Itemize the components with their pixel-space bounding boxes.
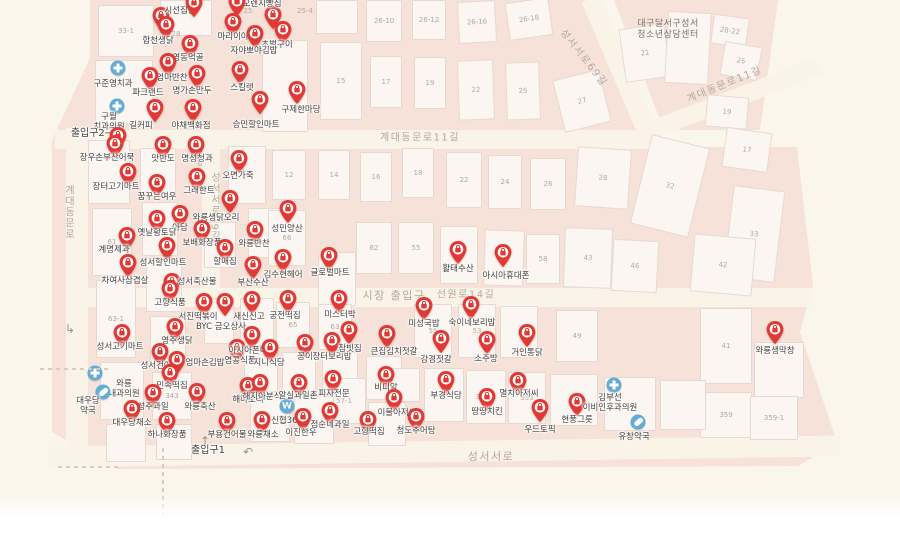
building-number: 43 — [583, 254, 592, 262]
building: 43 — [563, 227, 613, 289]
poi-label[interactable]: 미스터박 — [324, 310, 355, 320]
map-pin[interactable] — [216, 293, 234, 317]
poi-label[interactable]: 파크랜드 — [132, 88, 163, 98]
building: 14 — [318, 150, 350, 200]
building-number: 22 — [471, 86, 480, 94]
pin-shape — [478, 331, 496, 355]
pharmacy-icon[interactable] — [631, 415, 646, 430]
poi-label[interactable]: 와룡생막창 — [755, 346, 794, 356]
pin-shape — [279, 200, 297, 224]
map-pin[interactable] — [415, 297, 433, 321]
poi-label[interactable]: 유창약국 — [618, 432, 649, 442]
hospital-icon[interactable] — [607, 378, 622, 393]
building: 359-1 — [750, 396, 798, 440]
poi-label[interactable]: 염콩식품 — [224, 356, 255, 366]
poi-label[interactable]: 거인통닭 — [511, 348, 542, 358]
building: 15 — [320, 42, 362, 120]
poi-label[interactable]: 고향떡집 — [353, 427, 384, 437]
building-number: 19 — [722, 108, 732, 117]
poi-label[interactable]: 점순네과일 — [310, 420, 349, 430]
building: 18 — [402, 148, 434, 198]
poi-label[interactable]: 와룡반찬 — [238, 239, 269, 249]
poi-label[interactable]: 꽁이 — [297, 352, 313, 362]
building: 41 — [700, 308, 752, 384]
pin-shape — [462, 296, 480, 320]
pin-shape — [244, 256, 262, 280]
poi-label[interactable]: 대우당채소 — [112, 418, 151, 428]
poi-label[interactable]: 명가손만두 — [172, 86, 211, 96]
building-number: 41 — [722, 342, 731, 350]
poi-label[interactable]: 고향식품 — [154, 298, 185, 308]
building: 42 — [690, 233, 757, 296]
map-pin[interactable] — [378, 325, 396, 349]
poi-label[interactable]: 대우당 약국 — [76, 396, 99, 416]
building: 24 — [488, 155, 522, 209]
poi-label[interactable]: 구준영치과 — [93, 79, 132, 89]
pin-shape — [766, 321, 784, 345]
map-pin[interactable] — [221, 190, 239, 214]
poi-label[interactable]: 땅땅치킨 — [471, 407, 502, 417]
poi-label[interactable]: 명성청과 — [181, 154, 212, 164]
building-number: 62 — [370, 244, 379, 252]
building-number: 26-12 — [419, 16, 439, 24]
map-pin[interactable] — [766, 321, 784, 345]
map-pin[interactable] — [279, 200, 297, 224]
poi-label[interactable]: 자야뽀야김밥 — [231, 46, 278, 56]
building-number: 15 — [337, 77, 346, 85]
map-pin[interactable] — [146, 99, 164, 123]
road-arrow-glyph: ↑ — [200, 434, 210, 448]
pin-shape — [494, 244, 512, 268]
building — [316, 0, 358, 34]
building-number: 42 — [718, 261, 728, 270]
poi-label[interactable]: 해지아분식 — [242, 392, 281, 402]
poi-label[interactable]: 성민양산 — [271, 224, 302, 234]
road-arrow-glyph: ↳ — [65, 322, 75, 336]
building: 26-18 — [505, 0, 554, 41]
building-number: 32 — [665, 181, 676, 191]
building-number: 46 — [630, 262, 639, 270]
poi-label[interactable]: 오면가죽 — [222, 171, 253, 181]
poi-label[interactable]: 와룡 내과의원 — [108, 379, 139, 399]
pin-shape — [228, 0, 246, 17]
building: 17 — [370, 56, 402, 108]
pin-shape — [378, 325, 396, 349]
poi-label[interactable]: 부경식당 — [430, 391, 461, 401]
poi-label[interactable]: 하나화장품 — [147, 430, 186, 440]
building: 26-10 — [366, 0, 402, 42]
map-pin[interactable] — [531, 399, 549, 423]
poi-label[interactable]: 우드토픽 — [524, 425, 555, 435]
poi-label[interactable]: 야채백화점 — [171, 121, 210, 131]
poi-label[interactable]: 차여사삼겹살 — [102, 276, 149, 286]
map-pin[interactable] — [228, 0, 246, 17]
facility-label: 대구달서구성서 청소년상담센터 — [637, 19, 698, 42]
map-pin[interactable] — [462, 296, 480, 320]
poi-label[interactable]: 강경젓갈 — [420, 355, 451, 365]
poi-label[interactable]: 김수현헤어 — [263, 270, 302, 280]
road-arrow-glyph: ↶ — [243, 445, 253, 459]
building: 12 — [272, 150, 306, 200]
road-gyedae-left — [66, 128, 88, 468]
map-pin[interactable] — [119, 254, 137, 278]
pin-shape — [146, 99, 164, 123]
building-number: 18 — [414, 169, 423, 177]
poi-label[interactable]: 부산수산 — [237, 278, 268, 288]
map-pin[interactable] — [185, 0, 203, 18]
building-number: 359 — [719, 411, 732, 419]
poi-label[interactable]: 멸치아저씨 — [499, 389, 538, 399]
poi-label[interactable]: 김부선 이비인후과의원 — [583, 393, 638, 413]
map-pin[interactable] — [494, 244, 512, 268]
building-number: 25 — [736, 56, 746, 65]
pin-shape — [432, 330, 450, 354]
poi-label[interactable]: 새신신고 — [233, 312, 264, 322]
poi-label[interactable]: 성서할인마트 — [140, 258, 187, 268]
building: 26 — [530, 158, 566, 210]
building: 19 — [414, 57, 446, 109]
building — [106, 424, 146, 462]
boundary-dashed-line-lower — [58, 466, 120, 468]
building: 16 — [360, 152, 392, 202]
pin-shape — [415, 297, 433, 321]
building: 26-16 — [457, 0, 497, 44]
building: 25 — [505, 61, 541, 120]
building-number: 33-1 — [118, 27, 134, 35]
pin-shape — [221, 190, 239, 214]
map-pin[interactable] — [184, 99, 202, 123]
map-pin[interactable] — [518, 324, 536, 348]
building-number: 14 — [330, 171, 339, 179]
poi-label[interactable]: 길커피 — [129, 121, 152, 131]
building-number: 22 — [460, 176, 469, 184]
street-label: 계대동문로 — [61, 185, 76, 240]
poi-label[interactable]: 성서축산물 — [177, 277, 216, 287]
pin-shape — [340, 321, 358, 345]
pin-shape — [216, 293, 234, 317]
map-pin[interactable] — [478, 331, 496, 355]
building: 359 — [700, 392, 752, 438]
poi-label[interactable]: 장터고기마트 — [93, 182, 140, 192]
map-pin[interactable] — [449, 241, 467, 265]
building-number: 21 — [640, 48, 650, 57]
street-label: 계대동문로11길 — [380, 129, 460, 144]
building: 62 — [356, 222, 392, 274]
poi-label[interactable]: 성서고기마트 — [97, 342, 144, 352]
poi-label[interactable]: 와룡축산 — [184, 402, 215, 412]
poi-label[interactable]: 장우손부산어묵 — [80, 153, 135, 163]
poi-label[interactable]: 영동먹골 — [172, 53, 203, 63]
poi-label[interactable]: 알실과일촌 — [278, 391, 317, 401]
poi-label[interactable]: 와룡채소 — [247, 430, 278, 440]
building-number: 66 — [283, 234, 292, 242]
building-number: 25-4 — [297, 7, 313, 15]
poi-label[interactable]: 성주과일 — [137, 402, 168, 412]
building-number: 359-1 — [764, 414, 784, 422]
building: 28 — [574, 146, 632, 210]
map-pin[interactable] — [244, 256, 262, 280]
building: 33-1 — [98, 5, 154, 57]
building-number: 26 — [544, 180, 553, 188]
building-number: 16 — [372, 173, 381, 181]
poi-label[interactable]: 지니식당 — [253, 358, 284, 368]
poi-label[interactable]: 청도추어탕 — [396, 426, 435, 436]
street-label: 성서서로 — [468, 448, 514, 464]
boundary-dashed-line-upper — [40, 368, 108, 370]
building: 17 — [721, 127, 772, 173]
building-number: 28 — [598, 174, 607, 183]
building-number: 24 — [501, 178, 510, 186]
building: 55 — [398, 222, 434, 274]
map-pin[interactable] — [251, 91, 269, 115]
building-number: 26-16 — [467, 17, 488, 26]
pin-shape — [531, 399, 549, 423]
poi-label[interactable]: 현풍그릇 — [561, 415, 592, 425]
poi-label[interactable]: 그래한트 — [183, 186, 214, 196]
building: 49 — [556, 310, 598, 362]
poi-label[interactable]: 미성국밥 — [408, 319, 439, 329]
building-number: 63-1 — [108, 315, 124, 323]
pin-shape — [518, 324, 536, 348]
pin-shape — [251, 91, 269, 115]
building-number: 63 — [331, 323, 340, 331]
building-number: 27 — [577, 96, 588, 106]
building-number: 26-10 — [374, 17, 394, 25]
building-number: 25 — [518, 87, 527, 95]
poi-label[interactable]: 큰집김치젓갈 — [371, 347, 418, 357]
map-pin[interactable] — [432, 330, 450, 354]
pin-shape — [185, 0, 203, 18]
poi-label[interactable]: 합천생닭 — [142, 36, 173, 46]
hospital-icon[interactable] — [111, 61, 126, 76]
poi-label[interactable]: BYC 금오상사 — [196, 322, 246, 332]
building-number: 58 — [539, 255, 548, 263]
poi-label[interactable]: 꿈꾸는여우 — [137, 192, 176, 202]
building: 26-12 — [412, 0, 446, 40]
poi-label[interactable]: 맛반도 — [151, 154, 174, 164]
building-number: 49 — [573, 332, 582, 340]
map-pin[interactable] — [340, 321, 358, 345]
poi-label[interactable]: 엄마손김밥 — [185, 358, 224, 368]
map-pin[interactable] — [288, 81, 306, 105]
building-number: 17 — [382, 78, 391, 86]
building-number: 55 — [412, 244, 421, 252]
pin-shape — [449, 241, 467, 265]
map-pin[interactable] — [231, 61, 249, 85]
building: 22 — [446, 152, 482, 208]
building-number: 343 — [165, 392, 178, 400]
building-number: 65 — [289, 321, 298, 329]
poi-label[interactable]: 서진떡볶이 — [178, 312, 217, 322]
poi-label[interactable]: 참빗집 — [338, 344, 361, 354]
building: 22 — [457, 59, 495, 120]
pin-shape — [288, 81, 306, 105]
pin-shape — [119, 254, 137, 278]
poi-label[interactable]: 아시아휴대폰 — [483, 271, 530, 281]
building-number: 19 — [426, 79, 435, 87]
building-number: 12 — [285, 171, 294, 179]
poi-label[interactable]: 오렌지빵집 — [242, 0, 281, 9]
poi-label[interactable]: 활태수산 — [442, 264, 473, 274]
map-canvas[interactable]: 33-115171922252726-1026-1226-1626-182128… — [0, 0, 900, 540]
poi-label[interactable]: 피자전문 — [318, 389, 349, 399]
building-number: 26-18 — [518, 14, 539, 25]
poi-label[interactable]: 구제한마당 — [281, 105, 320, 115]
poi-label[interactable]: 할매집 — [213, 257, 236, 267]
poi-label[interactable]: 글로벌마트 — [310, 268, 349, 278]
pin-shape — [231, 61, 249, 85]
poi-label[interactable]: 숙이네보리밥 — [449, 318, 496, 328]
building: 46 — [611, 239, 660, 293]
building — [660, 380, 706, 430]
poi-label[interactable]: 부용건어물 — [207, 430, 246, 440]
poi-label[interactable]: 궁전떡집 — [269, 311, 300, 321]
building: 58 — [526, 234, 560, 284]
pin-shape — [184, 99, 202, 123]
poi-label[interactable]: 승민할인마트 — [233, 120, 280, 130]
bottom-fade — [0, 492, 900, 540]
building-number: 17 — [742, 145, 752, 154]
building: 19 — [705, 94, 750, 130]
building-number: 28-22 — [719, 26, 740, 37]
building-number: 33 — [749, 229, 759, 238]
poi-label[interactable]: 소주방 — [474, 354, 497, 364]
